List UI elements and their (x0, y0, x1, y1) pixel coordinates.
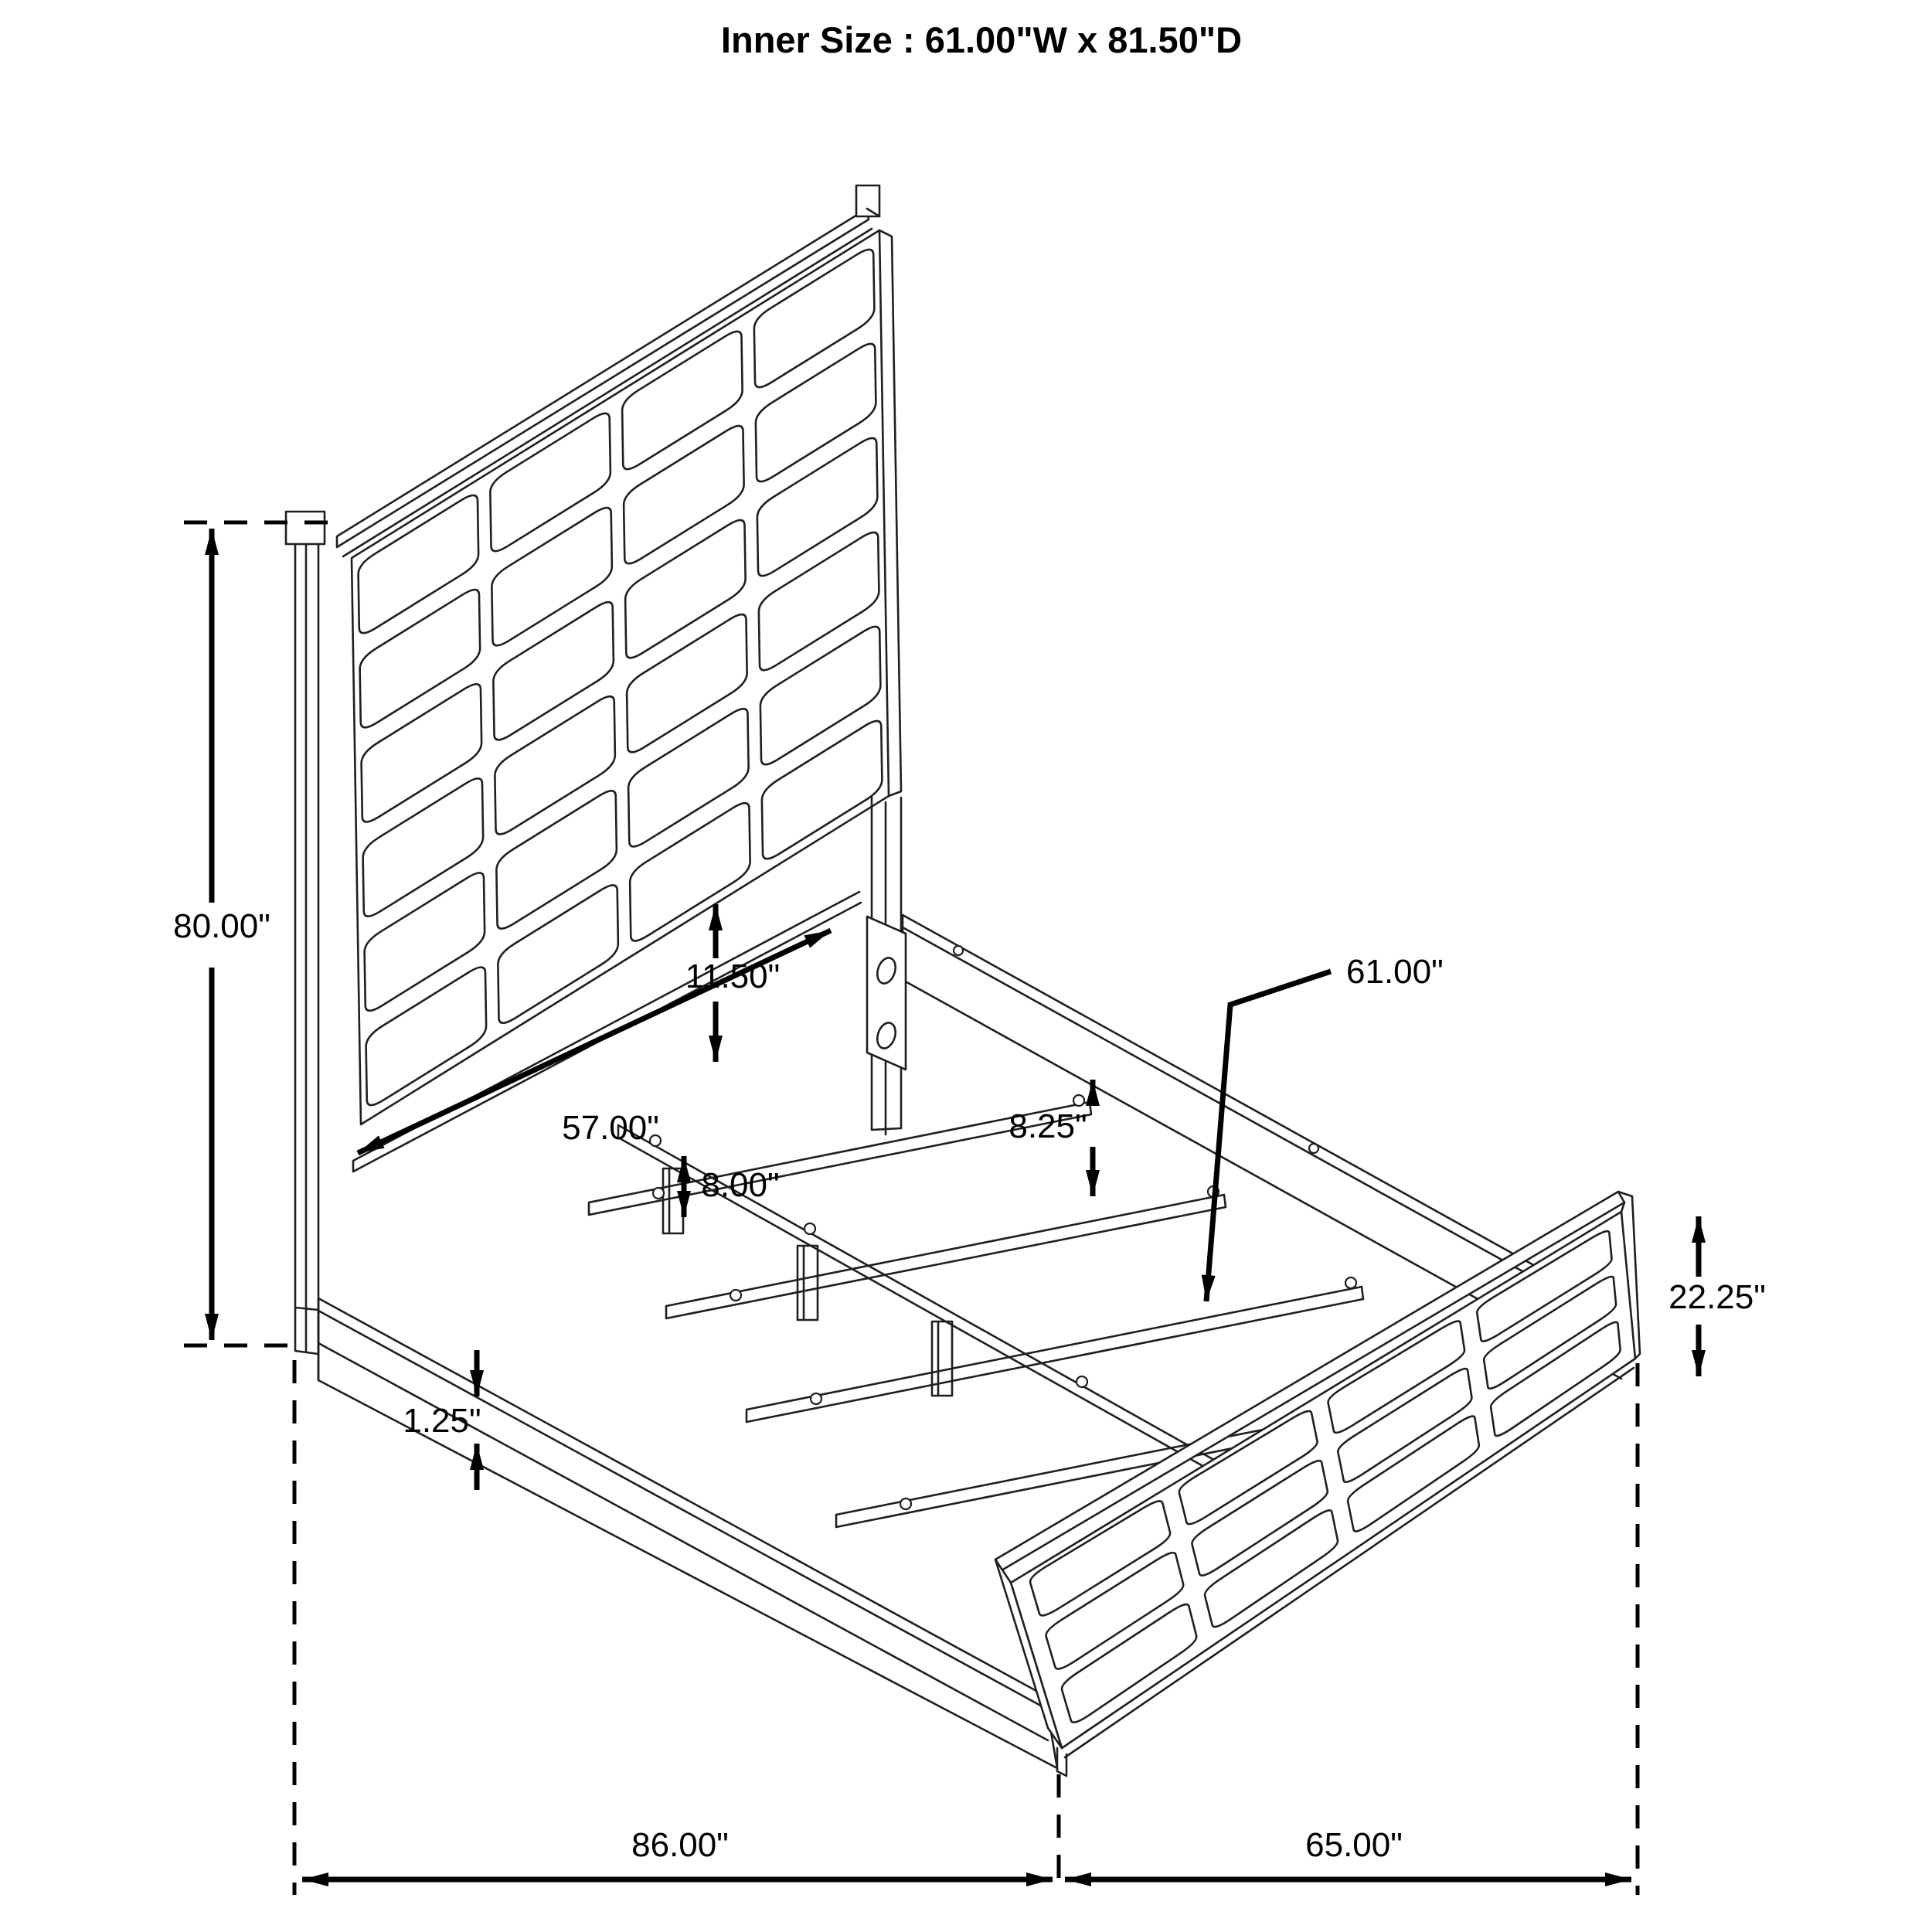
dim-label-rail-lip: 1.25" (403, 1402, 481, 1440)
dim-overall-length: 86.00" (302, 1826, 1053, 1879)
dim-label-overall-length: 86.00" (631, 1826, 729, 1864)
dim-label-leg-height: 8.00" (701, 1166, 779, 1204)
diagram-canvas: 80.00" 86.00" 65.00" 22.25" 11.50" 57.00… (0, 0, 1932, 1932)
dim-label-inner-head-width: 57.00" (562, 1109, 659, 1147)
bed-dimension-diagram: 80.00" 86.00" 65.00" 22.25" 11.50" 57.00… (0, 0, 1932, 1932)
page-title: Inner Size : 61.00"W x 81.50"D (721, 19, 1242, 60)
dim-label-overall-width: 65.00" (1305, 1826, 1403, 1864)
dim-label-footboard-height: 22.25" (1668, 1278, 1766, 1316)
dim-label-headboard-height: 80.00" (173, 907, 270, 945)
dim-headboard-height: 80.00" (173, 529, 270, 1340)
dim-label-rail-height: 8.25" (1009, 1107, 1087, 1145)
dim-slat-length: 61.00" (1206, 953, 1444, 1301)
footboard (995, 1192, 1640, 1776)
dim-headboard-gap: 11.50" (685, 904, 780, 1062)
dim-label-slat-length: 61.00" (1346, 953, 1444, 991)
dim-overall-width: 65.00" (1065, 1826, 1631, 1879)
headboard (286, 185, 906, 1354)
dim-footboard-height: 22.25" (1668, 1216, 1766, 1376)
